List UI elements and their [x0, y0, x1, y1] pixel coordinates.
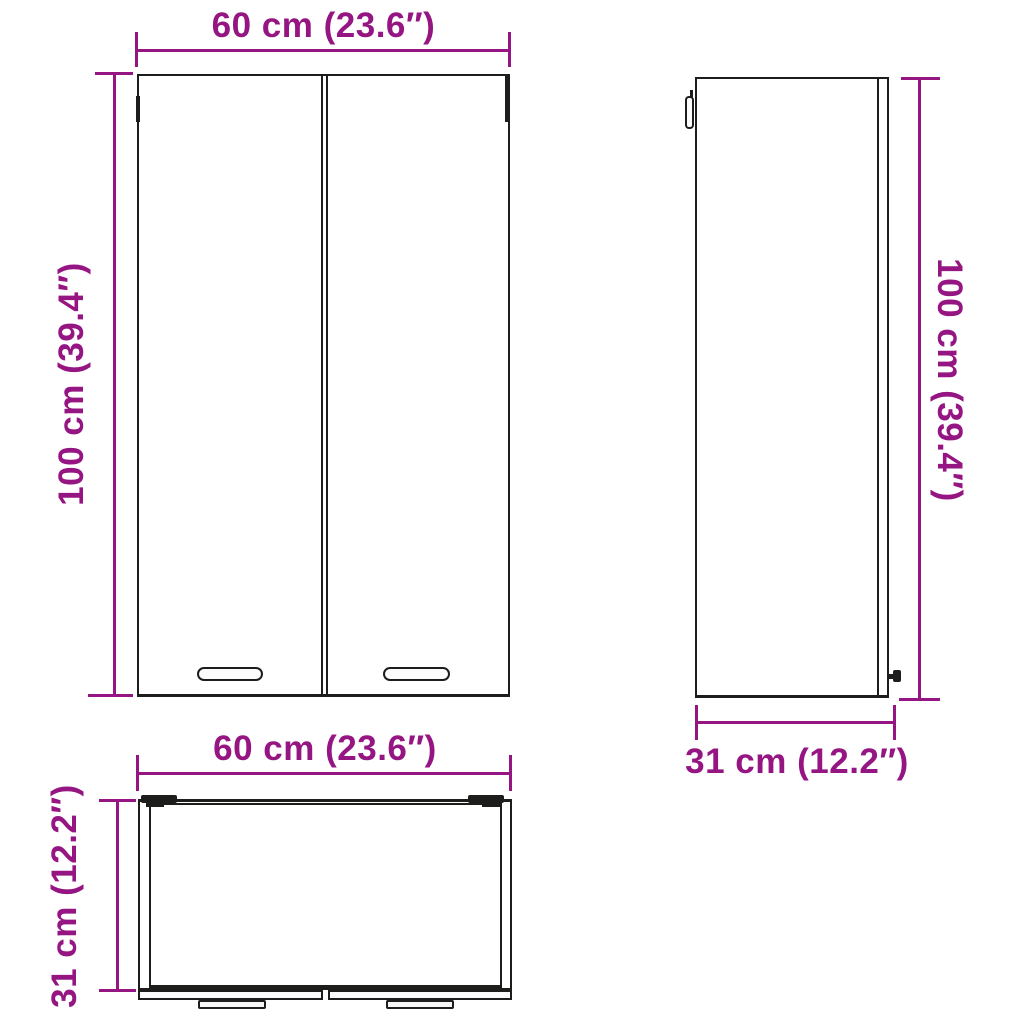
- front-height-dim-line: [113, 74, 116, 697]
- front-width-dim-tick-left: [135, 32, 138, 67]
- top-depth-dim-line: [116, 801, 119, 991]
- side-depth-dim-tick-left: [695, 705, 698, 740]
- side-wall-peg-cap: [893, 670, 901, 682]
- top-door-handle-left: [198, 1000, 266, 1009]
- top-width-dim-tick-left: [136, 755, 139, 791]
- side-depth-label: 31 cm (12.2″): [647, 742, 947, 782]
- front-left-door-handle: [197, 667, 263, 681]
- front-door-divider-line-2: [326, 76, 328, 695]
- top-view-inner-body: [149, 803, 502, 988]
- front-hinge-mark-right: [505, 76, 509, 122]
- top-door-edge-right: [328, 990, 512, 1000]
- front-width-dim-line: [137, 49, 510, 52]
- front-right-door-handle: [383, 667, 450, 681]
- front-view-outline: [137, 74, 510, 697]
- top-width-dim-tick-right: [509, 755, 512, 791]
- top-depth-label: 31 cm (12.2″): [44, 736, 86, 1024]
- front-door-divider-line-1: [321, 76, 323, 695]
- top-depth-dim-cap-top: [99, 799, 136, 802]
- front-height-dim-cap-bottom: [88, 694, 133, 697]
- side-view-outline: [695, 77, 889, 698]
- front-width-label: 60 cm (23.6″): [137, 6, 510, 46]
- top-hinge-bracket-left-bump: [146, 802, 164, 807]
- side-depth-dim-tick-right: [893, 705, 896, 740]
- side-door-handle: [685, 96, 694, 129]
- side-height-dim-cap-top: [901, 77, 940, 80]
- front-width-dim-tick-right: [508, 32, 511, 67]
- top-door-handle-right: [386, 1000, 454, 1009]
- top-width-dim-line: [138, 772, 512, 775]
- top-door-edge-left: [138, 990, 323, 1000]
- side-height-label: 100 cm (39.4″): [928, 220, 970, 540]
- top-width-label: 60 cm (23.6″): [138, 729, 512, 769]
- side-handle-hook: [690, 90, 693, 97]
- side-height-dim-line: [918, 79, 921, 701]
- top-hinge-bracket-right-bump: [482, 802, 500, 807]
- side-height-dim-cap-bottom: [899, 698, 940, 701]
- front-hinge-mark-left: [136, 96, 140, 122]
- side-depth-dim-line: [697, 721, 896, 724]
- front-height-label: 100 cm (39.4″): [51, 224, 93, 544]
- side-back-panel-line: [877, 79, 879, 696]
- front-height-dim-cap-top: [95, 72, 133, 75]
- dimension-diagram: 60 cm (23.6″) 100 cm (39.4″) 100 cm (39.…: [0, 0, 1024, 1024]
- top-depth-dim-cap-bottom: [99, 989, 136, 992]
